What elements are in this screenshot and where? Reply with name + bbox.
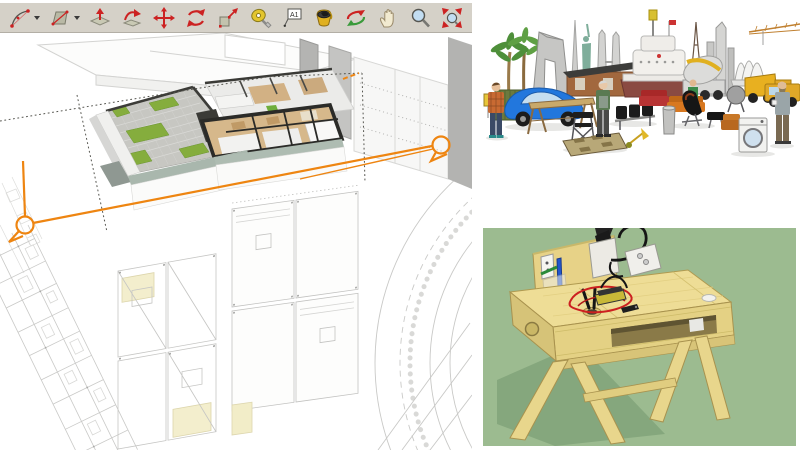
move-tool-icon[interactable] [152, 6, 176, 30]
washing-machine-model [739, 118, 767, 152]
rectangle-tool-dropdown-icon[interactable] [74, 16, 80, 20]
wireframe-middle-structure [118, 254, 216, 449]
zoom-tool-icon[interactable] [408, 6, 432, 30]
text-tool-icon[interactable]: A1 [280, 6, 304, 30]
sketchup-window: A1 [0, 0, 472, 450]
desk-model-panel [483, 228, 796, 446]
rectangle-tool-icon[interactable] [48, 6, 72, 30]
grommet-right [702, 295, 716, 302]
toolbar: A1 [0, 0, 472, 33]
trash-can-model [663, 106, 675, 134]
arc-tool-icon[interactable] [8, 6, 32, 30]
pan-tool-icon[interactable] [376, 6, 400, 30]
orbit-tool-icon[interactable] [344, 6, 368, 30]
svg-text:A1: A1 [290, 12, 299, 19]
rotate-tool-icon[interactable] [184, 6, 208, 30]
tape-measure-tool-icon[interactable] [248, 6, 272, 30]
power-outlet [541, 254, 554, 279]
arc-tool-dropdown-icon[interactable] [34, 16, 40, 20]
warehouse-collage-panel [483, 0, 800, 222]
scale-tool-icon[interactable] [216, 6, 240, 30]
gray-slab-right-edge [448, 37, 472, 189]
red-sofa-model [639, 90, 669, 106]
paint-bucket-tool-icon[interactable] [312, 6, 336, 30]
section-handle-left [17, 217, 34, 234]
zoom-extents-tool-icon[interactable] [440, 6, 464, 30]
wireframe-left-band [0, 225, 138, 450]
wireframe-left-map [0, 177, 42, 273]
push-pull-tool-icon[interactable] [88, 6, 112, 30]
follow-me-tool-icon[interactable] [120, 6, 144, 30]
modeling-viewport[interactable] [0, 33, 472, 450]
side-hole [526, 323, 539, 336]
screenshot-collage: A1 [0, 0, 800, 450]
orange-armchair-model [721, 114, 741, 130]
wireframe-right-facade [232, 185, 360, 435]
